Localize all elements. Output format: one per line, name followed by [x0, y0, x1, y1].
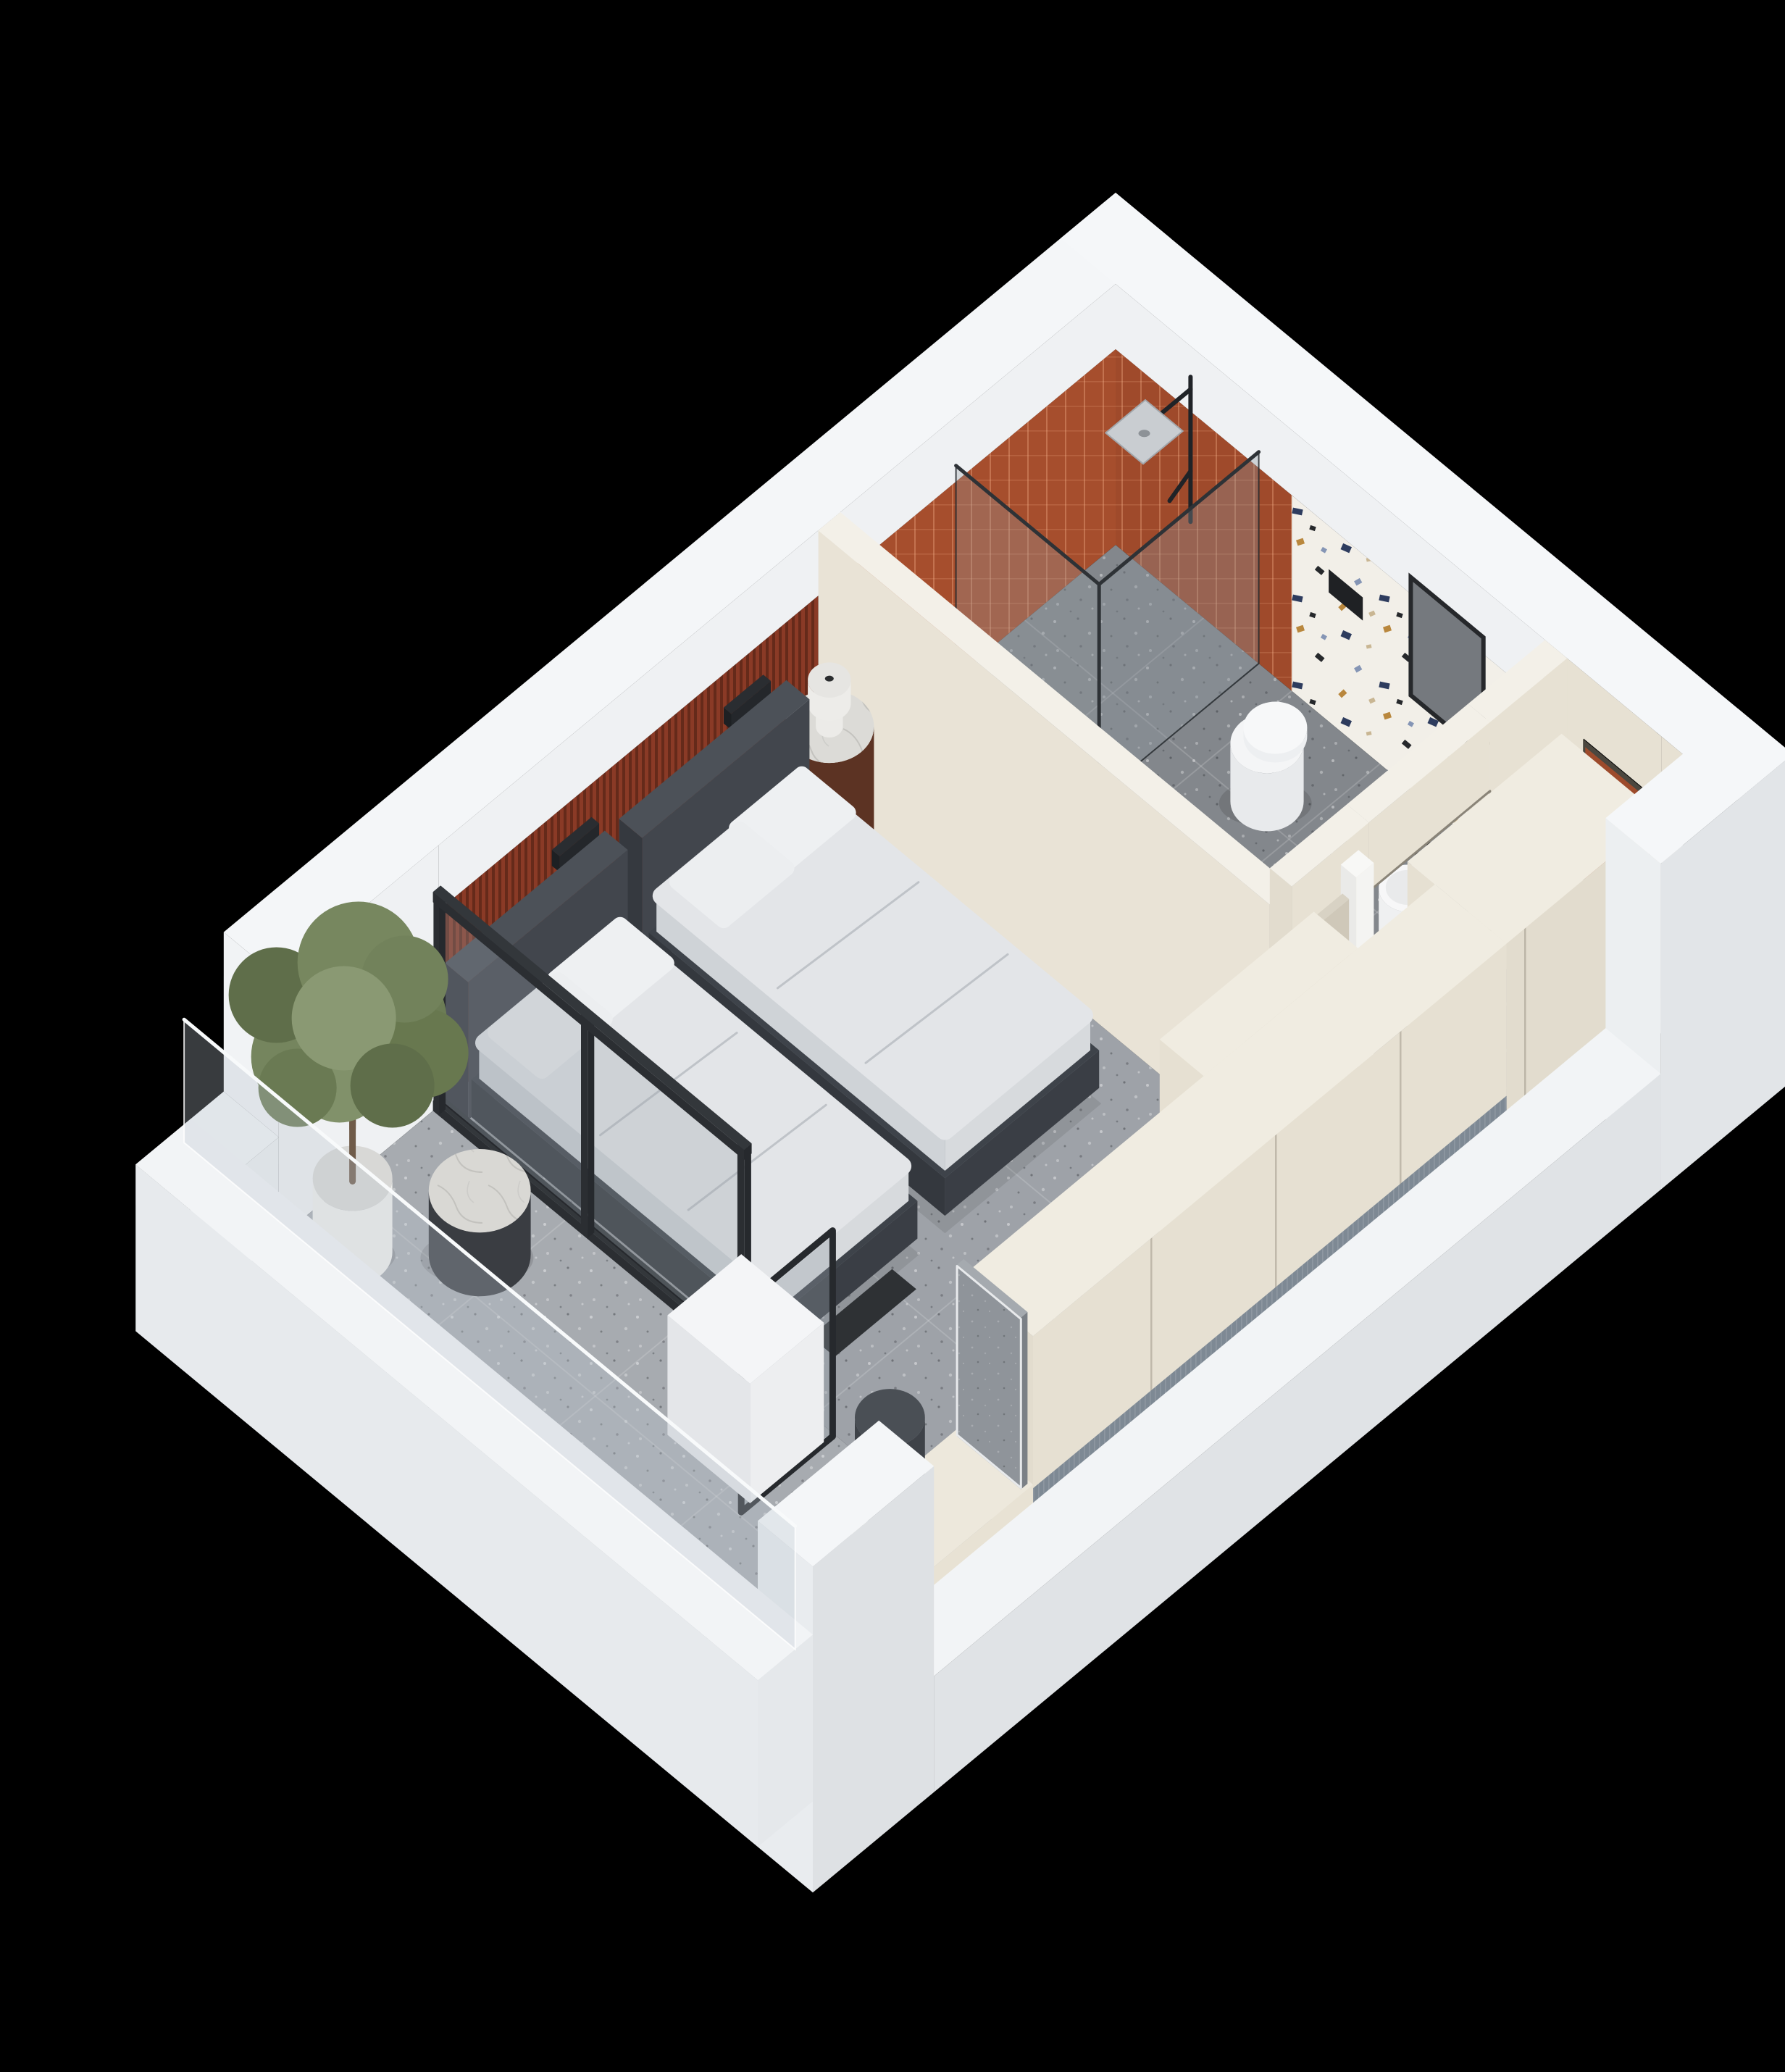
table-lamp-tip [825, 676, 834, 682]
isometric-floor-plan-render [29, 12, 1785, 2060]
toilet-seat [1243, 702, 1307, 763]
table-lamp-shade [808, 662, 850, 721]
shower-head-nozzle [1139, 430, 1150, 437]
floor-plan-figure: Isometric 3D floor plan render: studio h… [29, 12, 1785, 2060]
glazing-mullion [581, 1008, 594, 1238]
